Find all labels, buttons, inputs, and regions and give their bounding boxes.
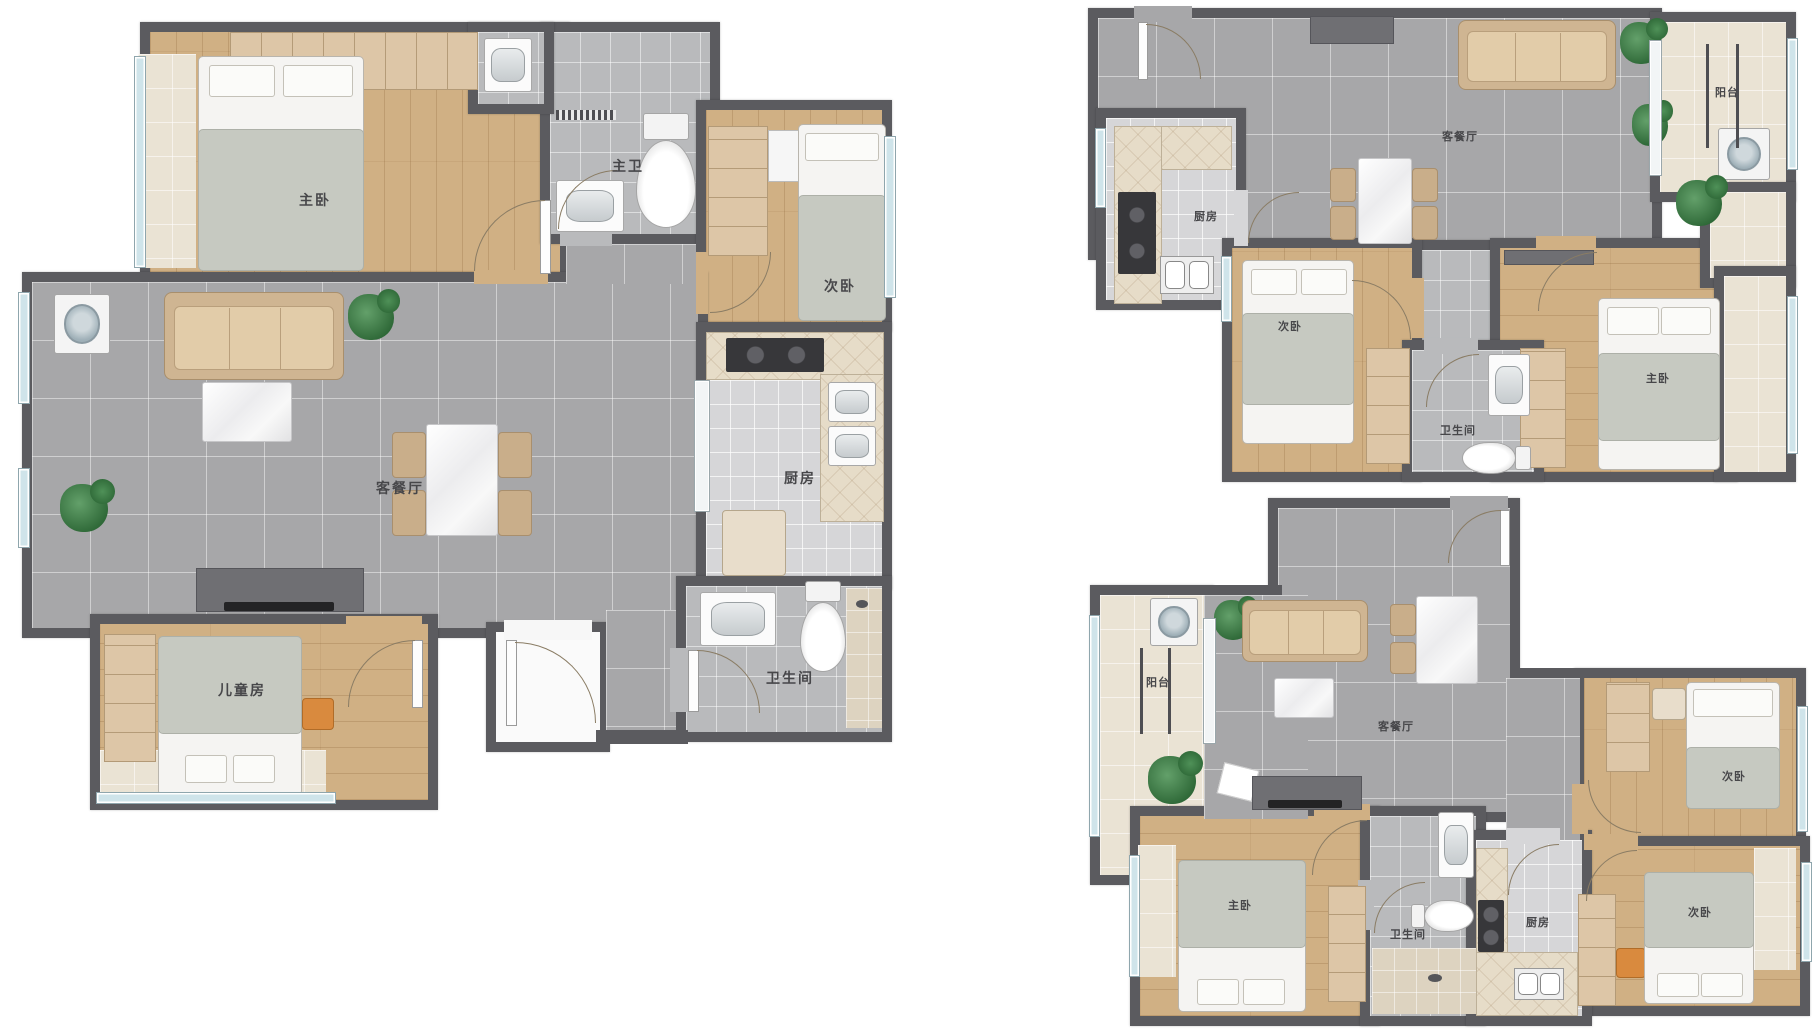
b-sofa	[1458, 20, 1616, 90]
b-kitchen-door-opening	[1234, 190, 1248, 246]
c-orange-chair	[1616, 948, 1646, 978]
c-second-bottom-door-opening	[1584, 834, 1638, 850]
a-dining-chair	[498, 432, 532, 478]
a-kids-bed	[158, 636, 302, 796]
c-master-window	[1129, 855, 1140, 977]
c-tv	[1268, 800, 1342, 808]
a-coffee-table	[202, 382, 292, 442]
c-master-bay	[1138, 845, 1176, 977]
a-kitchen-sink-1	[828, 382, 876, 422]
c-balcony-track	[1140, 648, 1143, 734]
a-sofa	[164, 292, 344, 380]
c-second-top-nightstand	[1652, 688, 1686, 720]
a-dining-table	[426, 424, 498, 536]
c-master-wardrobe	[1328, 886, 1366, 1002]
b-bath-sink	[1488, 354, 1530, 416]
c-label-second-bottom: 次卧	[1688, 904, 1712, 920]
pillow	[1301, 269, 1347, 295]
a-shower-area	[846, 588, 882, 728]
c-washing-machine	[1150, 598, 1198, 646]
b-entry-opening	[1134, 6, 1192, 22]
pillow	[1657, 973, 1699, 997]
a-plant-icon	[60, 484, 108, 532]
a-entry-opening	[504, 620, 592, 640]
pillow	[1661, 307, 1711, 335]
c-shower-area	[1372, 948, 1476, 1014]
pillow	[805, 133, 879, 161]
blanket	[198, 129, 364, 271]
a-kitchen-sink-2	[828, 426, 876, 466]
a-dining-chair	[392, 432, 426, 478]
c-master-bed	[1178, 860, 1306, 1012]
pillow	[1251, 269, 1297, 295]
b-master-bay-window	[1787, 296, 1798, 454]
a-hall-patch	[566, 244, 696, 284]
c-balcony-track	[1168, 648, 1171, 734]
a-label-master-bath: 主卫	[612, 156, 644, 176]
c-label-living: 客餐厅	[1378, 718, 1414, 734]
a-washing-machine	[54, 294, 110, 354]
a-kids-window	[96, 792, 336, 804]
b-label-second: 次卧	[1278, 318, 1302, 334]
b-second-door-opening	[1410, 278, 1424, 338]
a-label-master: 主卧	[299, 190, 331, 210]
a-niche-washbasin	[484, 38, 532, 92]
a-second-window	[884, 136, 896, 298]
c-entry-door-leaf	[1500, 510, 1510, 566]
a-orange-stool	[302, 698, 334, 730]
a-shower-head	[856, 600, 868, 608]
a-label-living: 客餐厅	[376, 478, 424, 498]
a-kitchen-sliding-door	[694, 380, 710, 512]
a-label-second: 次卧	[824, 276, 856, 296]
c-label-kitchen: 厨房	[1526, 914, 1550, 930]
a-fridge	[722, 510, 786, 576]
pillow	[1701, 973, 1743, 997]
b-bath-door-opening	[1424, 338, 1478, 354]
a-master-window	[134, 56, 146, 268]
c-second-top-door-opening	[1572, 784, 1588, 834]
c-bath-toilet	[1424, 900, 1474, 932]
c-living-left-topwall	[1194, 585, 1282, 595]
c-second-top-window	[1797, 706, 1808, 832]
c-balcony-window	[1089, 615, 1100, 837]
a-label-bath: 卫生间	[766, 668, 814, 688]
c-dining-chair	[1390, 604, 1416, 636]
b-balcony-window	[1787, 38, 1798, 170]
b-bath-toilet	[1462, 442, 1516, 474]
b-stove	[1118, 192, 1156, 274]
b-balcony-sliding-door	[1649, 40, 1662, 176]
blanket	[1598, 353, 1720, 441]
floor-plan-canvas: 主卧 主卫 次卧 客餐厅 厨房 卫生间 儿童房	[0, 0, 1812, 1030]
a-vent-grille	[556, 110, 616, 120]
a-south-wall	[596, 730, 688, 744]
b-washing-machine	[1718, 128, 1770, 180]
a-living-window-2	[18, 468, 30, 548]
b-kitchen-window	[1095, 128, 1106, 208]
c-bath-sink	[1438, 812, 1474, 878]
a-stove	[726, 338, 824, 372]
a-kids-door-opening	[346, 616, 422, 642]
c-label-second-top: 次卧	[1722, 768, 1746, 784]
c-sofa	[1242, 600, 1368, 662]
a-dining-chair	[498, 490, 532, 536]
c-second-bottom-desk	[1578, 894, 1616, 1006]
a-label-kitchen: 厨房	[784, 468, 816, 488]
b-dining-chair	[1330, 168, 1356, 202]
b-second-bed	[1242, 260, 1354, 444]
a-master-bay	[138, 54, 196, 268]
c-second-top-wardrobe	[1606, 682, 1650, 772]
a-second-shelf	[768, 130, 802, 182]
b-label-balcony: 阳台	[1715, 84, 1739, 100]
a-master-door-opening	[474, 270, 548, 284]
c-kitchen-double-sink	[1514, 968, 1564, 1000]
c-second-bottom-bay	[1754, 848, 1796, 970]
a-bathroom-door-opening	[670, 648, 690, 712]
c-second-top-bed	[1686, 682, 1780, 808]
pillow	[283, 65, 353, 97]
b-second-wardrobe	[1366, 348, 1410, 464]
a-bath-hall-patch	[606, 610, 676, 734]
c-label-balcony: 阳台	[1146, 674, 1170, 690]
b-console-cabinet	[1310, 16, 1394, 44]
c-hall-topwall	[1510, 668, 1580, 678]
a-tv	[224, 602, 334, 611]
b-dining-chair	[1412, 206, 1438, 240]
b-label-master: 主卧	[1646, 370, 1670, 386]
a-bathroom-sink	[700, 592, 776, 646]
b-master-bay	[1714, 266, 1796, 482]
a-masterbath-door-opening	[560, 232, 612, 246]
a-second-door-opening	[696, 252, 708, 314]
a-label-kids: 儿童房	[218, 680, 266, 700]
c-label-bath: 卫生间	[1390, 926, 1426, 942]
b-master-bay-floor	[1724, 276, 1786, 472]
b-dining-table	[1358, 158, 1412, 244]
pillow	[1243, 979, 1285, 1005]
b-dining-chair	[1412, 168, 1438, 202]
b-balcony-track	[1706, 44, 1709, 148]
c-label-master: 主卧	[1228, 897, 1252, 913]
c-entry-opening	[1450, 496, 1508, 510]
b-label-bath: 卫生间	[1440, 422, 1476, 438]
b-kitchen-double-sink	[1160, 256, 1214, 294]
pillow	[185, 755, 227, 783]
c-dining-table	[1416, 596, 1478, 684]
c-coffee-table	[1274, 678, 1334, 718]
a-master-bed	[198, 56, 364, 270]
pillow	[233, 755, 275, 783]
c-stove	[1478, 900, 1504, 952]
pillow	[1197, 979, 1239, 1005]
c-plant-icon	[1148, 756, 1196, 804]
c-shower-head	[1428, 974, 1442, 982]
b-plant-icon-3	[1676, 180, 1722, 226]
b-label-kitchen: 厨房	[1194, 208, 1218, 224]
b-dining-chair	[1330, 206, 1356, 240]
c-hall-patch	[1506, 678, 1580, 840]
a-living-window-1	[18, 292, 30, 404]
pillow	[1693, 689, 1773, 717]
a-kids-wardrobe	[104, 634, 156, 762]
c-second-bottom-window	[1801, 862, 1812, 962]
c-balcony-sliding-door	[1203, 618, 1216, 744]
b-second-window	[1221, 256, 1232, 322]
c-second-bottom-bed	[1644, 872, 1754, 1004]
a-plant-icon	[348, 294, 394, 340]
c-dining-chair	[1390, 642, 1416, 674]
pillow	[209, 65, 275, 97]
pillow	[1607, 307, 1659, 335]
blanket	[798, 195, 886, 321]
b-label-living: 客餐厅	[1442, 128, 1478, 144]
c-kitchen-door-opening	[1506, 828, 1560, 844]
a-second-wardrobe	[708, 126, 768, 256]
